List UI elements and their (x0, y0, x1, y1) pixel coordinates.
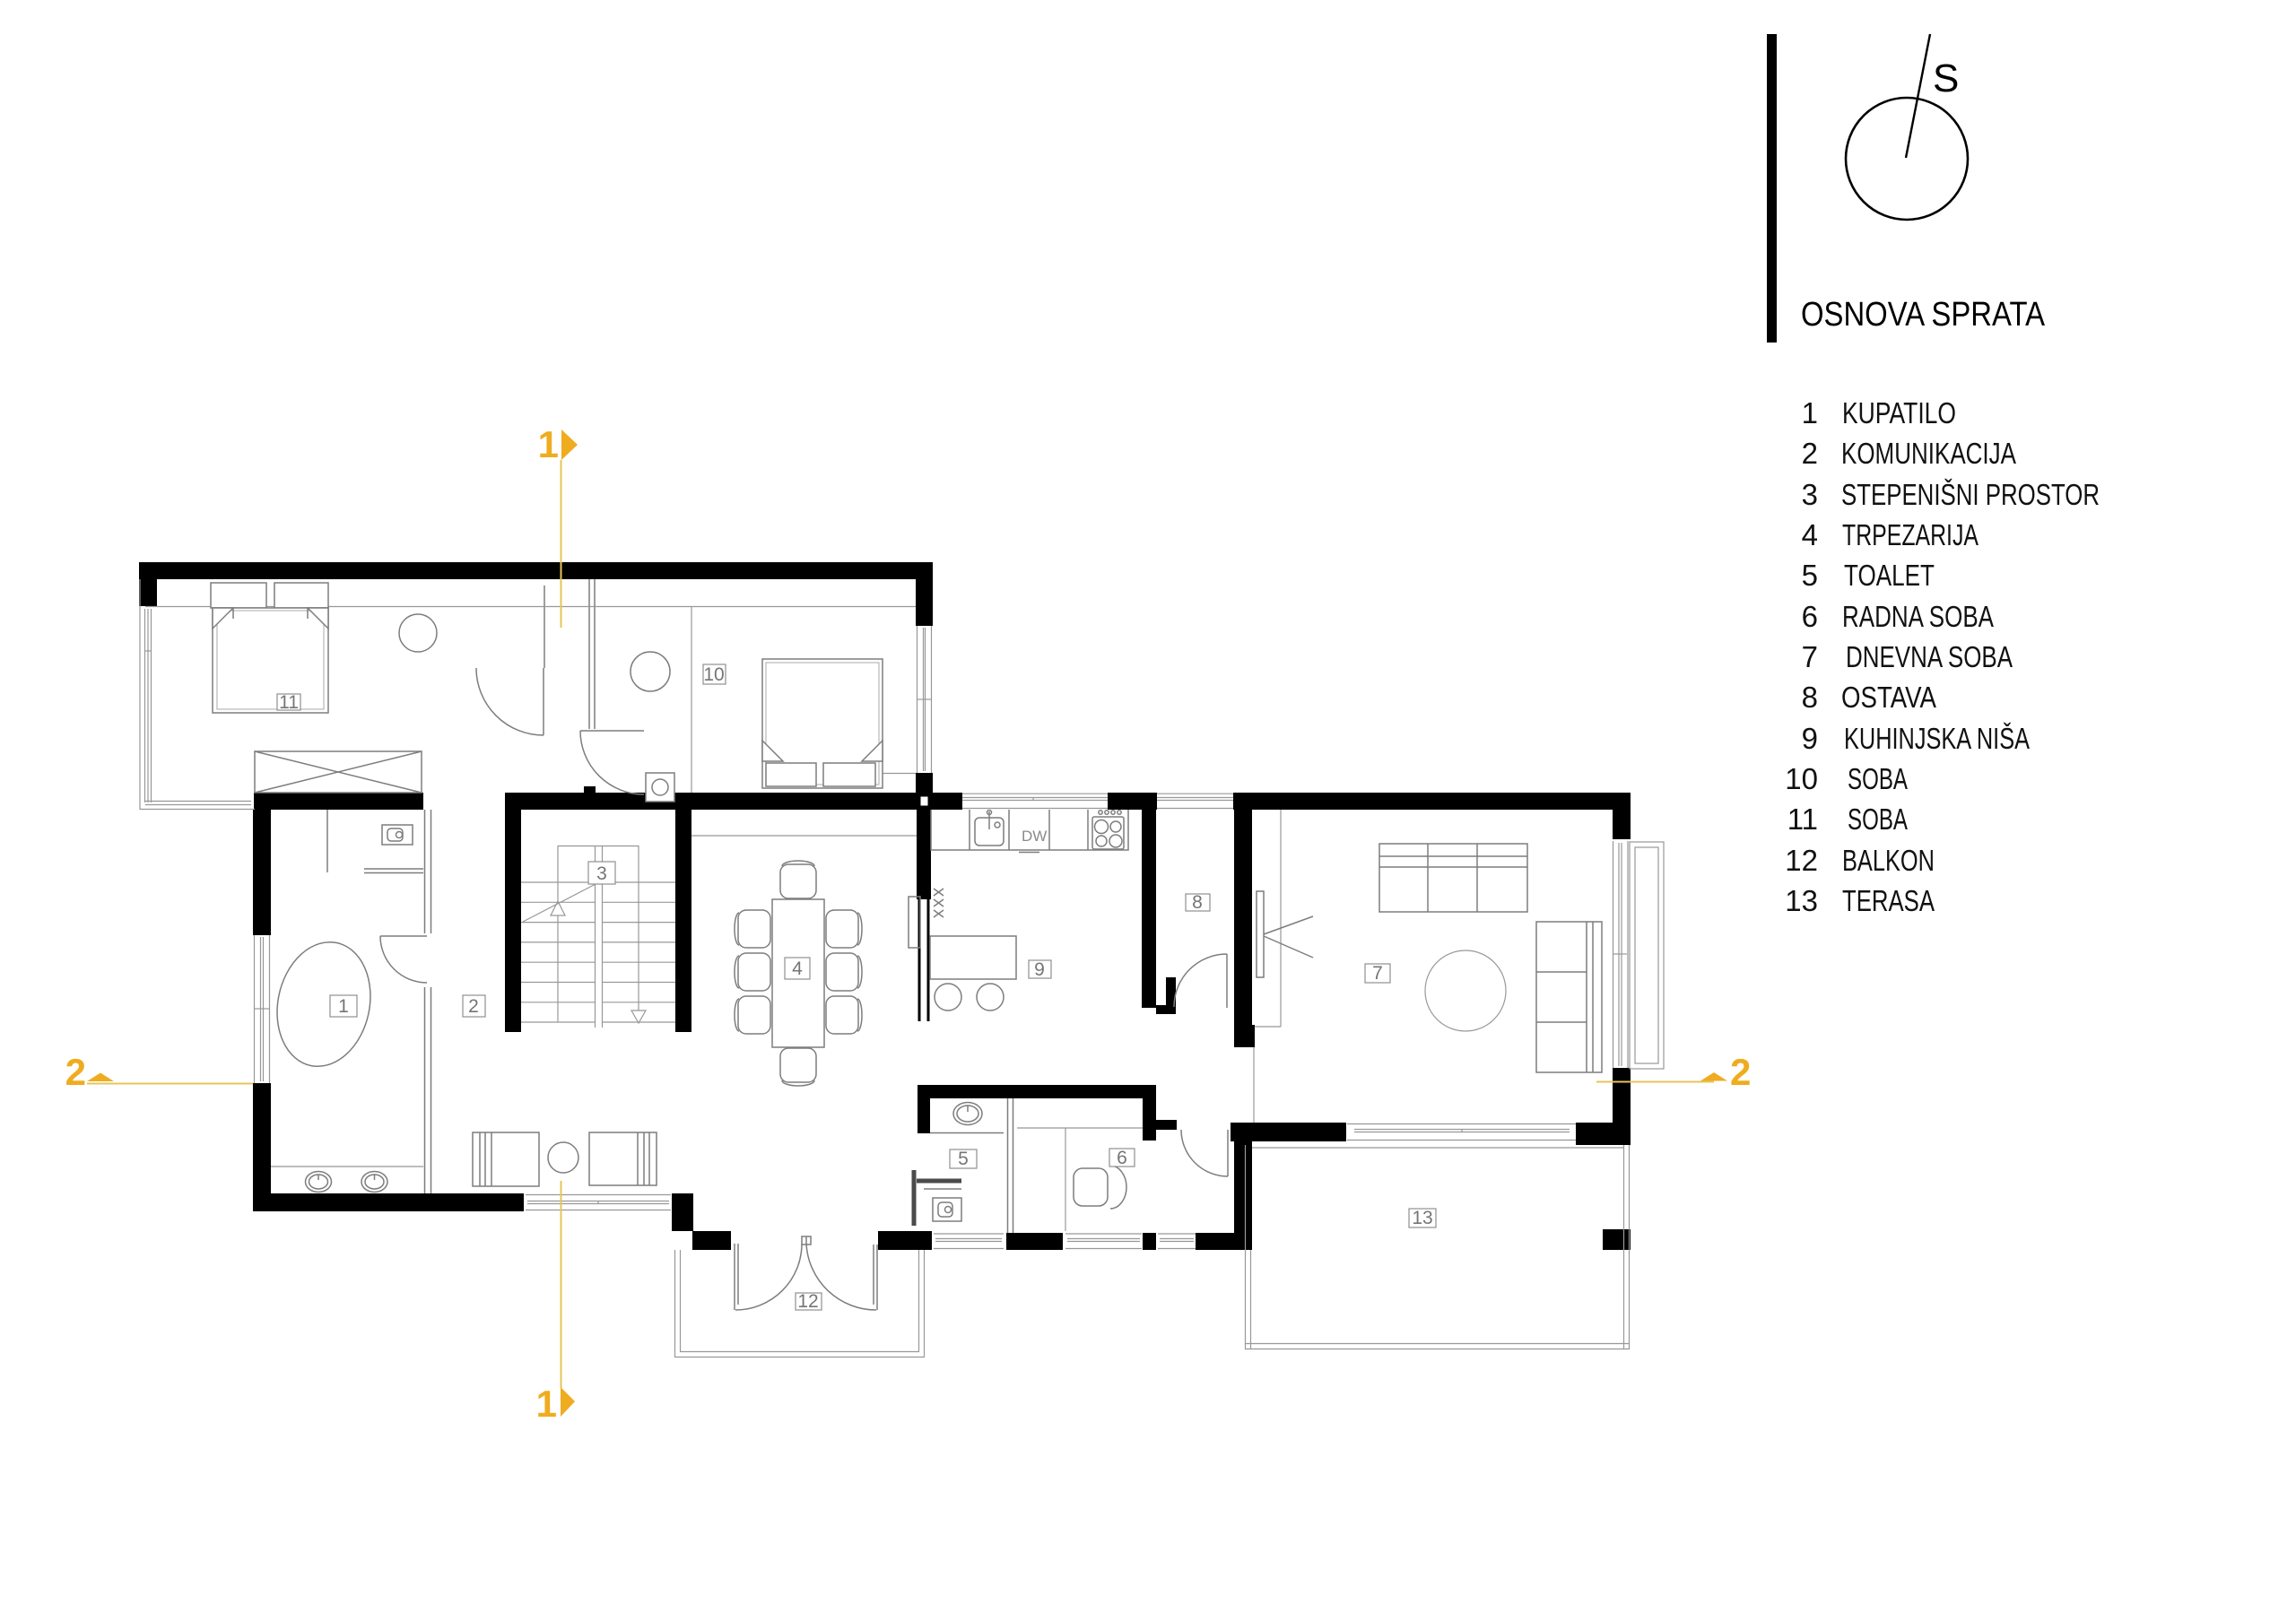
svg-text:7: 7 (1802, 640, 1818, 673)
svg-text:S: S (1933, 56, 1959, 100)
svg-text:10: 10 (1785, 762, 1818, 795)
svg-text:5: 5 (958, 1149, 969, 1169)
svg-text:SOBA: SOBA (1848, 762, 1908, 795)
svg-text:1: 1 (1802, 396, 1818, 429)
svg-text:BALKON: BALKON (1842, 844, 1935, 877)
svg-text:2: 2 (1730, 1051, 1751, 1093)
svg-text:STEPENIŠNI PROSTOR: STEPENIŠNI PROSTOR (1841, 478, 2100, 511)
svg-text:KOMUNIKACIJA: KOMUNIKACIJA (1841, 437, 2016, 470)
svg-text:9: 9 (1802, 722, 1818, 755)
svg-text:12: 12 (1785, 844, 1818, 877)
svg-text:10: 10 (703, 664, 724, 685)
svg-text:2: 2 (1802, 437, 1818, 470)
svg-text:13: 13 (1412, 1208, 1432, 1228)
svg-text:8: 8 (1192, 892, 1203, 913)
svg-text:TOALET: TOALET (1844, 559, 1935, 592)
svg-text:OSNOVA SPRATA: OSNOVA SPRATA (1801, 296, 2046, 334)
svg-text:KUHINJSKA NIŠA: KUHINJSKA NIŠA (1844, 722, 2030, 755)
svg-text:8: 8 (1802, 681, 1818, 714)
svg-text:11: 11 (1787, 802, 1818, 836)
svg-text:5: 5 (1802, 559, 1818, 592)
svg-text:2: 2 (65, 1051, 86, 1093)
svg-text:13: 13 (1785, 884, 1818, 917)
svg-text:6: 6 (1117, 1148, 1127, 1168)
svg-text:4: 4 (792, 958, 803, 979)
svg-text:4: 4 (1802, 518, 1818, 551)
svg-text:9: 9 (1034, 959, 1045, 980)
svg-text:11: 11 (279, 692, 299, 713)
svg-text:1: 1 (538, 423, 559, 465)
svg-text:DNEVNA SOBA: DNEVNA SOBA (1846, 640, 2013, 673)
svg-text:RADNA SOBA: RADNA SOBA (1842, 600, 1994, 633)
svg-text:3: 3 (1802, 478, 1818, 511)
svg-text:DW: DW (1022, 828, 1047, 845)
svg-text:1: 1 (338, 996, 349, 1017)
svg-text:SOBA: SOBA (1848, 802, 1908, 836)
svg-text:2: 2 (468, 996, 479, 1017)
svg-text:TRPEZARIJA: TRPEZARIJA (1842, 518, 1979, 551)
svg-text:KUPATILO: KUPATILO (1842, 396, 1956, 429)
svg-text:OSTAVA: OSTAVA (1841, 681, 1936, 714)
svg-text:TERASA: TERASA (1842, 884, 1935, 917)
svg-text:7: 7 (1372, 963, 1383, 984)
svg-text:6: 6 (1802, 600, 1818, 633)
svg-text:12: 12 (797, 1291, 818, 1312)
svg-text:1: 1 (536, 1383, 557, 1425)
svg-text:3: 3 (596, 863, 607, 884)
